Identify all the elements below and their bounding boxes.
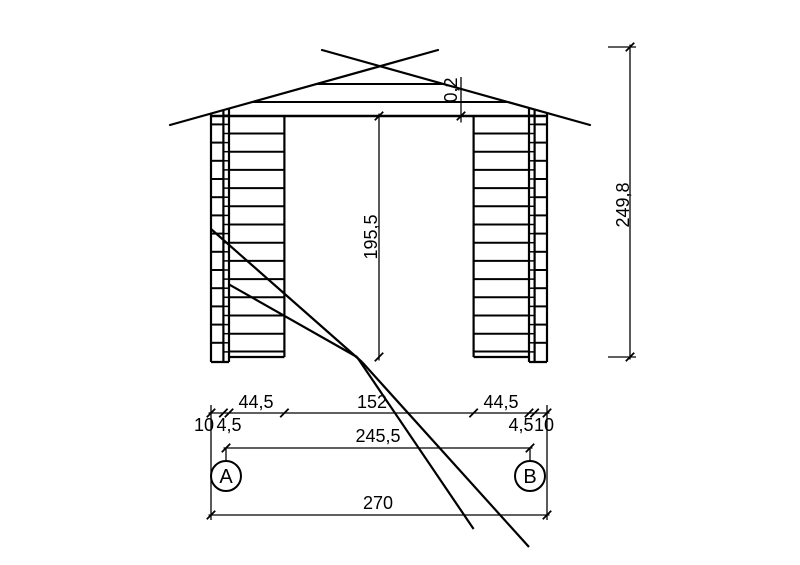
label-total-height: 249,8 <box>613 182 633 227</box>
label-left-end-log: 10 <box>194 415 214 435</box>
axis-label-a: A <box>219 466 233 488</box>
left-wall <box>211 109 362 363</box>
wall-line <box>211 229 362 362</box>
label-left-joint: 4,5 <box>216 415 241 435</box>
label-right-wall-width: 44,5 <box>483 392 518 412</box>
elevation-drawing: 44,5 152 44,5 10 4,5 4,5 10 245,5 270 19… <box>0 0 800 565</box>
wall-line <box>229 284 357 357</box>
label-span-inner: 245,5 <box>355 426 400 446</box>
wall-line <box>362 362 529 547</box>
label-right-joint: 4,5 <box>508 415 533 435</box>
label-total-width: 270 <box>363 493 393 513</box>
label-roof-gap: 0,2 <box>441 77 461 102</box>
right-wall <box>357 109 547 548</box>
drawing-canvas: 44,5 152 44,5 10 4,5 4,5 10 245,5 270 19… <box>0 0 800 565</box>
axis-markers: A B <box>211 461 545 491</box>
label-left-wall-width: 44,5 <box>238 392 273 412</box>
label-opening-height: 195,5 <box>361 214 381 259</box>
label-opening-width: 152 <box>357 392 387 412</box>
axis-label-b: B <box>523 466 536 488</box>
label-right-end-log: 10 <box>534 415 554 435</box>
